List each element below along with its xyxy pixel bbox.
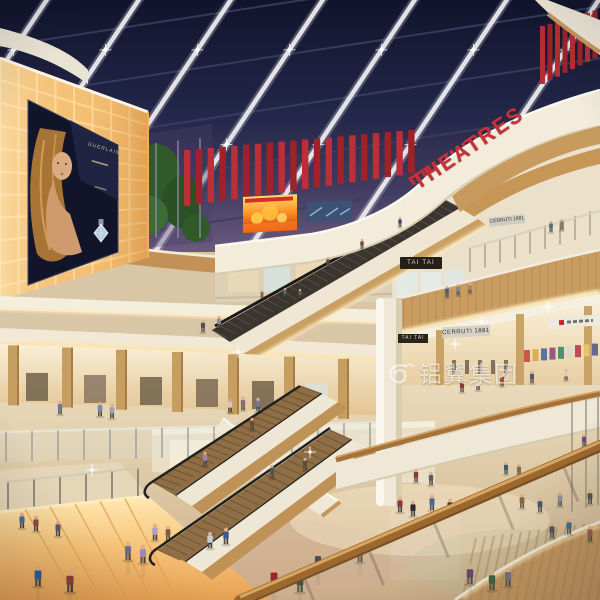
red-logo-mark-icon: [559, 320, 564, 325]
illegible-sign-text: [567, 319, 593, 324]
taitai-store-sign-upper: TAI TAI: [400, 257, 442, 269]
watermark-text: 铝翼集团: [419, 363, 519, 386]
watermark-logo-icon: [384, 358, 414, 390]
atrium-scene: [0, 0, 600, 600]
watermark: 铝翼集团: [384, 358, 519, 390]
mall-atrium-rendering: THEATRES TAI TAI TAI TAI CERRUTI 1881 CE…: [0, 0, 600, 600]
taitai-store-sign-lower: TAI TAI: [398, 334, 428, 343]
vignette: [0, 0, 600, 600]
